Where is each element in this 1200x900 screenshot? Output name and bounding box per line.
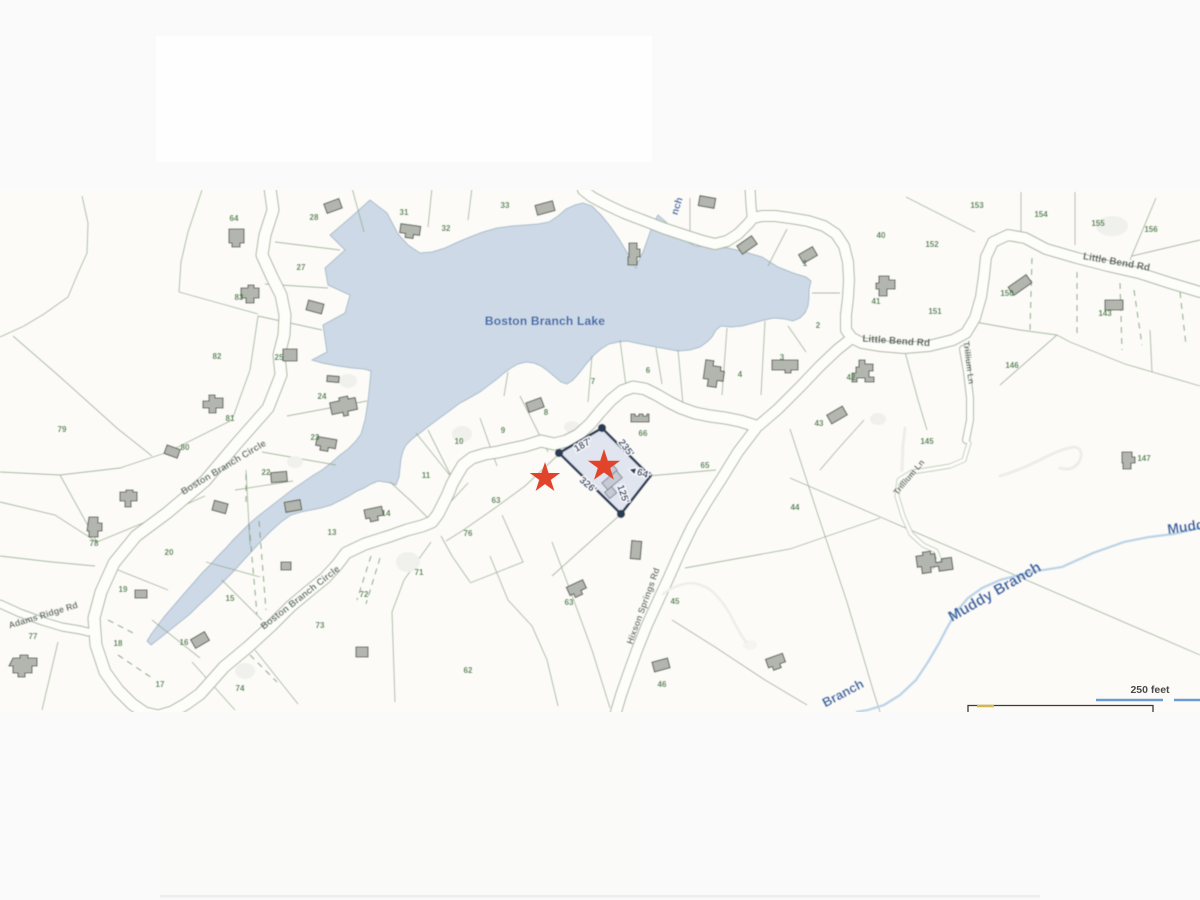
svg-text:6: 6 [646,366,651,375]
svg-text:76: 76 [464,529,473,538]
svg-text:23: 23 [311,433,320,442]
svg-text:156: 156 [1144,225,1158,234]
svg-text:25: 25 [275,353,284,362]
svg-text:17: 17 [156,680,165,689]
svg-text:80: 80 [181,443,190,452]
svg-text:40: 40 [877,231,886,240]
svg-text:33: 33 [501,201,510,210]
svg-text:66: 66 [639,429,648,438]
svg-text:31: 31 [400,208,409,217]
svg-text:15: 15 [226,594,235,603]
svg-text:27: 27 [297,263,306,272]
svg-text:63: 63 [492,496,501,505]
svg-text:42: 42 [847,373,856,382]
svg-text:11: 11 [422,471,431,480]
svg-text:64: 64 [230,214,239,223]
svg-text:9: 9 [501,426,506,435]
svg-text:3: 3 [780,353,785,362]
svg-text:7: 7 [591,377,596,386]
svg-text:147: 147 [1137,454,1151,463]
svg-text:20: 20 [165,548,174,557]
svg-text:14: 14 [382,509,391,518]
svg-text:1: 1 [803,259,808,268]
svg-text:62: 62 [464,666,473,675]
svg-text:152: 152 [925,240,939,249]
svg-text:28: 28 [310,213,319,222]
svg-text:153: 153 [970,201,984,210]
svg-text:41: 41 [872,297,881,306]
svg-text:74: 74 [236,684,245,693]
svg-text:Boston Branch Lake: Boston Branch Lake [485,314,605,328]
svg-text:13: 13 [328,528,337,537]
svg-text:81: 81 [226,414,235,423]
svg-text:10: 10 [455,437,464,446]
svg-text:18: 18 [114,639,123,648]
svg-text:32: 32 [442,224,451,233]
svg-text:22: 22 [262,468,271,477]
svg-text:43: 43 [815,419,824,428]
svg-text:78: 78 [90,539,99,548]
svg-text:71: 71 [415,568,424,577]
svg-text:72: 72 [360,590,369,599]
svg-text:46: 46 [658,680,667,689]
svg-text:79: 79 [58,425,67,434]
svg-text:45: 45 [671,597,680,606]
svg-text:4: 4 [738,370,743,379]
svg-text:65: 65 [701,461,710,470]
svg-text:146: 146 [1005,361,1019,370]
svg-text:250 feet: 250 feet [1130,684,1170,696]
svg-text:16: 16 [180,638,189,647]
svg-text:2: 2 [816,321,821,330]
svg-text:19: 19 [119,585,128,594]
svg-text:155: 155 [1091,219,1105,228]
svg-text:63: 63 [565,598,574,607]
svg-text:83: 83 [235,293,244,302]
svg-text:8: 8 [544,408,549,417]
svg-text:151: 151 [928,307,942,316]
svg-text:24: 24 [318,392,327,401]
svg-text:143: 143 [1098,309,1112,318]
svg-text:77: 77 [29,632,38,641]
svg-text:82: 82 [213,352,222,361]
svg-text:145: 145 [920,437,934,446]
svg-text:44: 44 [791,503,800,512]
svg-text:73: 73 [316,621,325,630]
svg-text:150: 150 [1000,289,1014,298]
svg-text:154: 154 [1034,210,1048,219]
